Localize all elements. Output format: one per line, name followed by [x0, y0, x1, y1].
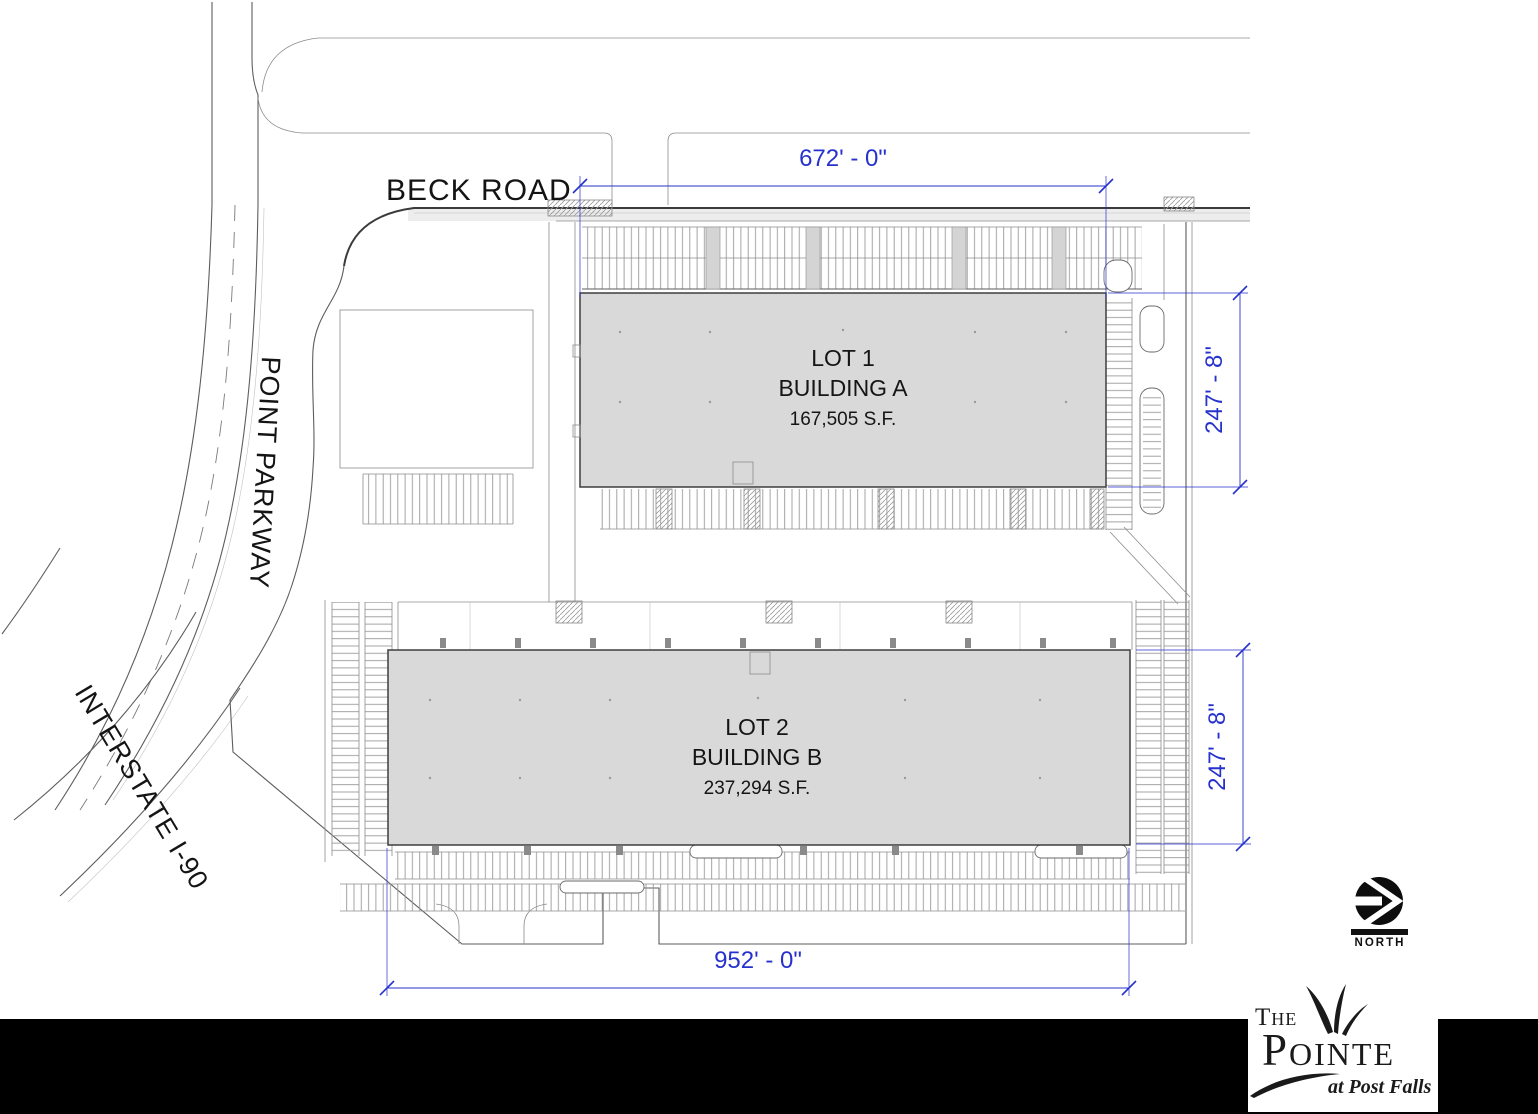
logo-pointe: Pointe: [1262, 1028, 1395, 1073]
north-label: NORTH: [1355, 937, 1406, 949]
building-b-area: 237,294 S.F.: [704, 778, 811, 799]
site-plan-drawing: LOT 1 BUILDING A 167,505 S.F.: [0, 0, 1538, 1114]
point-parkway-label: POINT PARKWAY: [244, 356, 286, 590]
logo-tagline: at Post Falls: [1328, 1076, 1431, 1099]
dimension-672-label: 672' - 0": [799, 145, 887, 172]
interstate-label: INTERSTATE I-90: [69, 680, 215, 895]
building-b: LOT 2 BUILDING B 237,294 S.F.: [388, 650, 1130, 845]
north-arrow: NORTH: [1351, 877, 1408, 949]
site-plan-page: LOT 1 BUILDING A 167,505 S.F.: [0, 0, 1538, 1114]
dimension-247-b-label: 247' - 8": [1204, 703, 1231, 791]
logo: The Pointe at Post Falls: [1248, 984, 1438, 1112]
dimension-247-a-label: 247' - 8": [1201, 346, 1228, 434]
beck-road-linework: [212, 2, 1250, 266]
lot2-column-marks: [440, 638, 1116, 648]
building-a: LOT 1 BUILDING A 167,505 S.F.: [573, 293, 1106, 487]
lot1-label: LOT 1: [811, 345, 875, 371]
beck-road-label: BECK ROAD: [386, 174, 572, 207]
dimension-952-label: 952' - 0": [714, 947, 802, 974]
building-a-area: 167,505 S.F.: [790, 409, 897, 430]
interstate-linework: [2, 548, 248, 902]
building-b-label: BUILDING B: [692, 744, 822, 770]
lot2-label: LOT 2: [725, 714, 789, 740]
building-a-label: BUILDING A: [778, 375, 908, 401]
